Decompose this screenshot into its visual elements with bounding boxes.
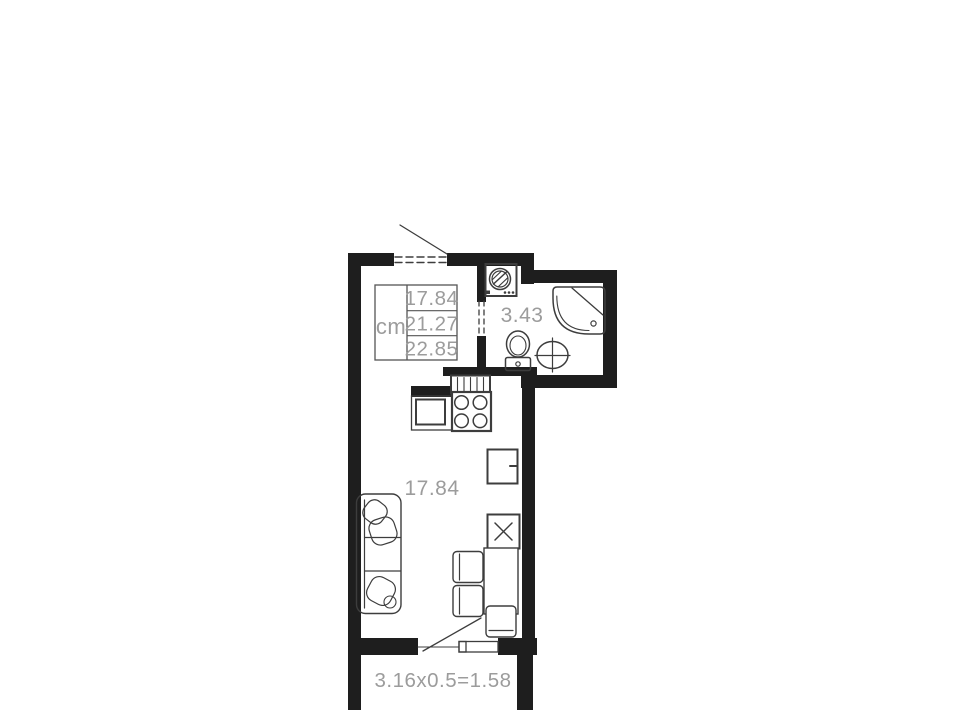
chair — [453, 552, 483, 583]
chair — [486, 606, 516, 637]
wall-top-left — [348, 253, 394, 266]
shower-door — [572, 288, 603, 315]
floor-plan: cm 17.84 21.27 22.85 3.43 17.84 3.16x0.5… — [0, 0, 960, 710]
sofa — [357, 494, 402, 614]
floor-plan-page: cm 17.84 21.27 22.85 3.43 17.84 3.16x0.5… — [0, 0, 960, 710]
fridge — [488, 450, 518, 484]
area-table-value-with-balcony: 22.85 — [405, 338, 459, 361]
kitchen-sink — [416, 400, 445, 425]
living-area-label: 17.84 — [404, 477, 459, 500]
wall-bath-left-lower — [477, 336, 486, 369]
wall-bottom-left — [348, 638, 418, 655]
wall-right — [522, 375, 535, 655]
chair — [453, 586, 483, 617]
dining-table — [484, 548, 518, 614]
balcony-dimensions-label: 3.16x0.5=1.58 — [374, 669, 511, 692]
washing-machine — [486, 264, 517, 296]
shaft-box — [488, 515, 520, 549]
shower-drain — [591, 321, 596, 326]
wall-bath-top — [521, 270, 613, 283]
entrance-door — [395, 225, 447, 263]
bathroom-sink — [535, 338, 570, 372]
balcony-door-leaf — [459, 642, 498, 653]
bathroom-door — [479, 301, 484, 337]
shower-cabin — [553, 287, 605, 334]
toilet — [506, 331, 531, 371]
area-table-value-living: 17.84 — [405, 287, 459, 310]
wall-bottom-right — [498, 638, 537, 655]
wall-bath-bottom — [521, 375, 617, 388]
bathroom-area-label: 3.43 — [501, 304, 544, 327]
entrance-door-swing — [400, 225, 447, 254]
stove — [452, 392, 491, 431]
area-table-value-total: 21.27 — [405, 313, 459, 336]
vent-shaft — [451, 376, 490, 394]
area-table-unit: cm — [376, 314, 406, 339]
sofa-pillow — [363, 573, 398, 608]
wall-balcony-right — [517, 655, 533, 710]
